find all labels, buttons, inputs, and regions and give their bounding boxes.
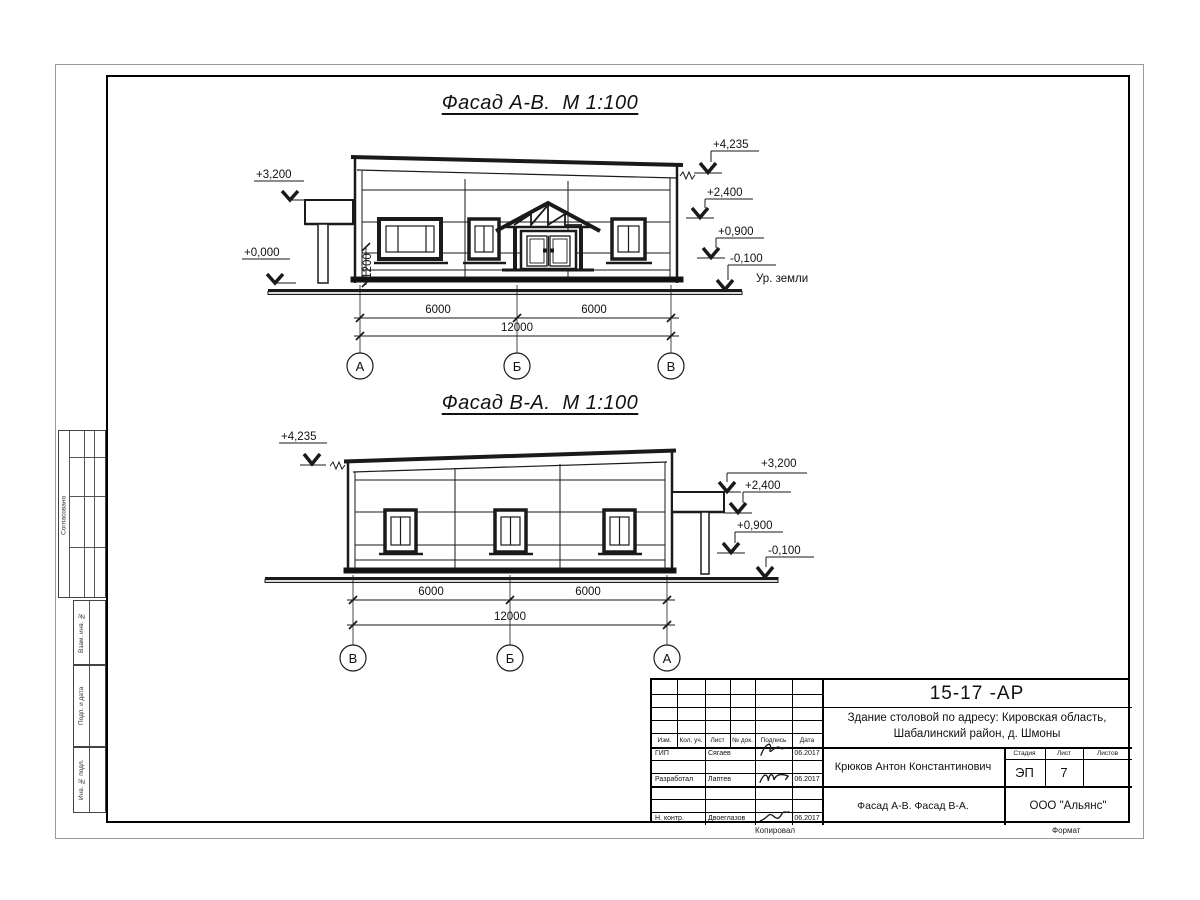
row-date: 06.2017 [792, 747, 822, 760]
roof-line [344, 451, 676, 462]
elevation-arrow-icon [267, 274, 283, 283]
elevation-arrow-icon [703, 248, 719, 258]
signature-laptev [757, 767, 791, 789]
elevation-arrow-icon [757, 567, 773, 577]
row-role: Н. контр. [652, 812, 705, 825]
facade-2-windows [379, 510, 642, 554]
mark-3200-label: +3,200 [256, 169, 292, 181]
dim-6000-left: 6000 [418, 586, 444, 598]
signature-sigaev [757, 739, 791, 761]
mark-4235-label: +4,235 [713, 139, 749, 151]
mark-0900-label: +0,900 [737, 520, 773, 532]
ground-level-label: Ур. земли [756, 273, 808, 285]
col-list: Лист [705, 733, 730, 747]
elevation-arrow-icon [304, 454, 320, 464]
company-name: ООО "Альянс" [1004, 786, 1132, 825]
stage-label: Стадия [1004, 747, 1045, 759]
kopiroval-label: Копировал [755, 826, 795, 835]
row-date: 06.2017 [792, 773, 822, 786]
mark-4235-label: +4,235 [281, 431, 317, 443]
sheet-content-title: Фасад А-В. Фасад В-А. [822, 786, 1004, 825]
mark-3200-label: +3,200 [761, 458, 797, 470]
col-doc: № док. [730, 733, 755, 747]
elevation-arrow-icon [717, 280, 733, 290]
plinth [344, 568, 676, 573]
project-name: Здание столовой по адресу: Кировская обл… [822, 707, 1132, 747]
facade-1-title: Фасад А-В. М 1:100 [380, 92, 700, 115]
sheets-total [1083, 759, 1132, 786]
dim-6000-left: 6000 [425, 304, 451, 316]
axis-letter: В [667, 359, 676, 374]
facade-1-drawing: +3,200 +0,000 +4,235 +2,400 +0,900 -0,1 [230, 135, 810, 385]
row-name: Сягаев [705, 747, 755, 760]
col-kol: Кол. уч. [677, 733, 705, 747]
vzam-inv-label: Взам. инв. № [74, 601, 89, 664]
stage-value: ЭП [1004, 759, 1045, 786]
mark-0000-label: +0,000 [244, 247, 280, 259]
elevation-arrow-icon [719, 482, 735, 492]
podp-data-cell: Подп. и дата [73, 665, 106, 747]
sheets-label: Листов [1083, 747, 1132, 759]
col-izm: Изм. [652, 733, 677, 747]
title-block: Изм. Кол. уч. Лист № док. Подпись Дата Г… [650, 678, 1130, 823]
elevation-arrow-icon [723, 543, 739, 553]
elevation-arrow-icon [730, 503, 746, 513]
elevation-arrow-icon [282, 191, 298, 200]
facade-2-drawing: +4,235 +3,200 +2,400 +0,900 -0,100 [230, 420, 830, 680]
document-number: 15-17 -АР [822, 680, 1132, 707]
row-name: Лаптев [705, 773, 755, 786]
axis-letter: Б [513, 359, 522, 374]
elevation-arrow-icon [692, 208, 708, 218]
break-symbol [330, 462, 345, 469]
row-name: Двоеглазов [705, 812, 755, 825]
soglasovano-label: Согласовано [59, 431, 69, 599]
dim-6000-right: 6000 [581, 304, 607, 316]
drawing-sheet: Фасад А-В. М 1:100 Фасад В-А. М 1:100 [0, 0, 1200, 900]
break-symbol [680, 172, 695, 179]
row-date: 06.2017 [792, 812, 822, 825]
sheet-label: Лист [1045, 747, 1083, 759]
project-line-1: Здание столовой по адресу: Кировская обл… [848, 711, 1107, 727]
mark-minus0100-label: -0,100 [730, 253, 763, 265]
mark-minus0100-label: -0,100 [768, 545, 801, 557]
elevation-arrow-icon [700, 163, 716, 173]
roof-line [351, 157, 683, 165]
mark-2400-label: +2,400 [745, 480, 781, 492]
sheet-number: 7 [1045, 759, 1083, 786]
dim-1200-label: 1200 [362, 253, 374, 279]
axis-letter: А [356, 359, 365, 374]
window [379, 219, 441, 259]
facade-2-canopy [672, 492, 724, 574]
signature-dvoeglazov [757, 806, 791, 828]
podp-data-label: Подп. и дата [74, 666, 89, 746]
vzam-inv-cell: Взам. инв. № [73, 600, 106, 665]
dim-12000: 12000 [494, 611, 526, 623]
dim-12000: 12000 [501, 322, 533, 334]
project-line-2: Шабалинский район, д. Шмоны [894, 727, 1061, 743]
soglasovano-table: Согласовано [58, 430, 106, 598]
axis-letter: В [349, 651, 358, 666]
col-date: Дата [792, 733, 822, 747]
facade-1-entrance-porch [496, 203, 600, 270]
facade-1-canopy [305, 200, 353, 283]
facade-1-dimensions: 6000 6000 12000 А Б В [347, 285, 684, 379]
format-label: Формат [1052, 826, 1080, 835]
mark-0900-label: +0,900 [718, 226, 754, 238]
facade-2-title: Фасад В-А. М 1:100 [380, 392, 700, 415]
facade-2-dimensions: 6000 6000 12000 В Б А [340, 575, 680, 671]
inv-podl-label: Инв. № подл. [74, 748, 89, 812]
row-role: ГИП [652, 747, 705, 760]
inv-podl-cell: Инв. № подл. [73, 747, 106, 813]
axis-letter: Б [506, 651, 515, 666]
plinth [351, 277, 683, 282]
row-role: Разработал [652, 773, 705, 786]
dim-6000-right: 6000 [575, 586, 601, 598]
axis-letter: А [663, 651, 672, 666]
mark-2400-label: +2,400 [707, 187, 743, 199]
author-name: Крюков Антон Константинович [822, 747, 1004, 786]
